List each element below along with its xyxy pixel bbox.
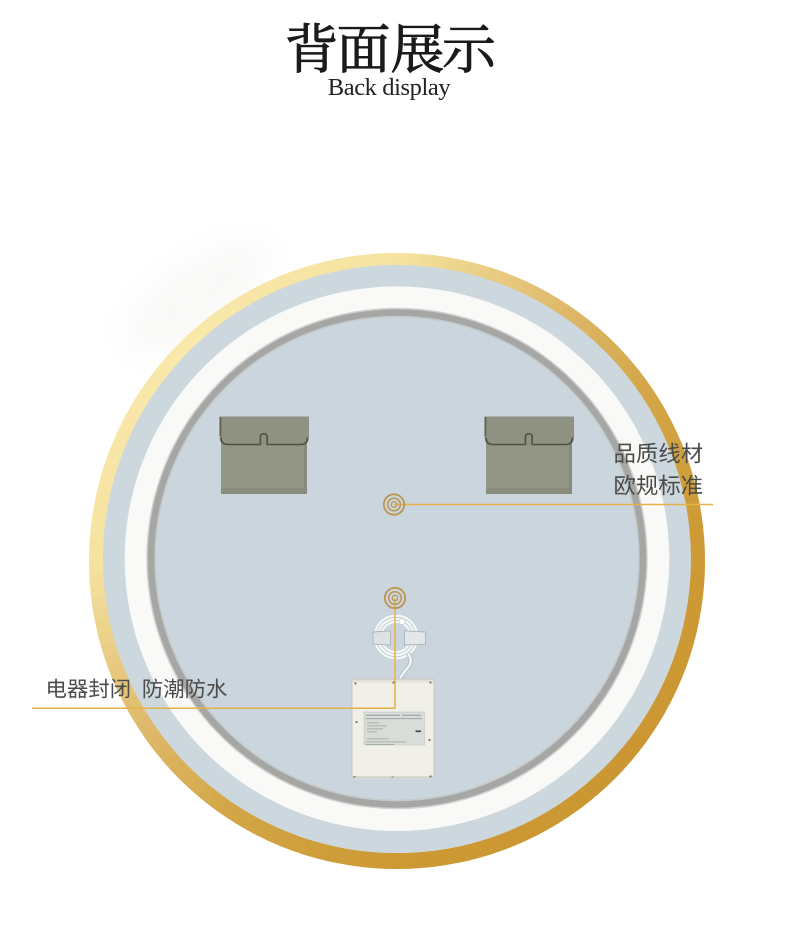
svg-text:Back display: Back display <box>328 74 452 101</box>
